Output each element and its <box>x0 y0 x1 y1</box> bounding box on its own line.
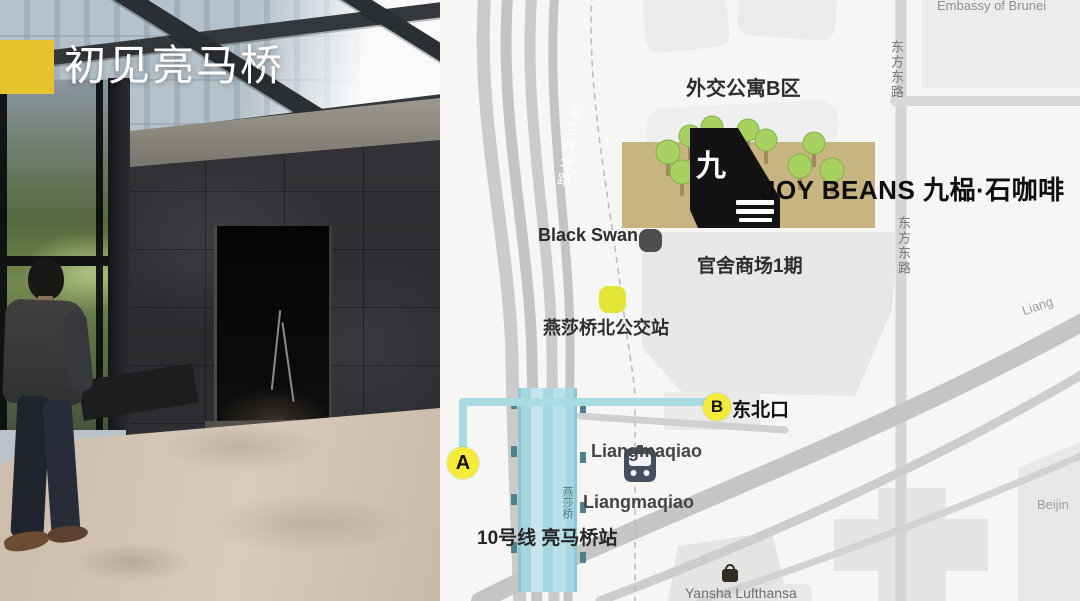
route-marker-a: A <box>447 447 479 479</box>
person-head <box>28 258 64 300</box>
route-marker-b: B <box>703 393 731 421</box>
label-bus-stop: 燕莎桥北公交站 <box>543 314 669 340</box>
label-black-swan: Black Swan <box>538 225 638 246</box>
label-dongfang-east-road-upper: 东方东路 <box>887 40 906 100</box>
label-yansha-lufthansa: Yansha Lufthansa <box>685 585 797 601</box>
label-guanshe-mall: 官舍商场1期 <box>697 251 803 278</box>
label-yansha-bridge: 燕莎桥 <box>559 486 575 519</box>
label-northeast-exit: 东北口 <box>732 395 789 422</box>
label-beijing: Beijin <box>1037 497 1069 512</box>
person-leg <box>42 399 80 537</box>
hanging-wire <box>281 322 294 401</box>
label-embassy-of-brunei: Embassy of Brunei <box>937 0 1046 13</box>
doorway <box>214 226 332 426</box>
standing-person <box>0 250 160 601</box>
label-liangmaqiao-lower: Liangmaqiao <box>583 492 694 513</box>
label-dongfang-east-road-lower: 东方东路 <box>894 216 913 276</box>
label-line10-station: 10号线 亮马桥站 <box>477 523 617 550</box>
title-accent-square <box>0 40 54 94</box>
label-joy-beans-cafe: JOY BEANS 九榀·石咖啡 <box>761 170 1065 207</box>
black-swan-marker <box>639 229 662 252</box>
slide: 初见亮马桥 <box>0 0 1080 601</box>
bus-stop-marker <box>599 286 626 313</box>
location-map: 九 <box>440 0 1080 601</box>
page-title: 初见亮马桥 <box>64 38 284 96</box>
label-diplomatic-compound-b: 外交公寓B区 <box>686 72 800 101</box>
label-liangmaqiao-upper: Liangmaqiao <box>591 441 702 462</box>
svg-text:九: 九 <box>696 149 726 184</box>
hanging-wire <box>271 310 281 390</box>
